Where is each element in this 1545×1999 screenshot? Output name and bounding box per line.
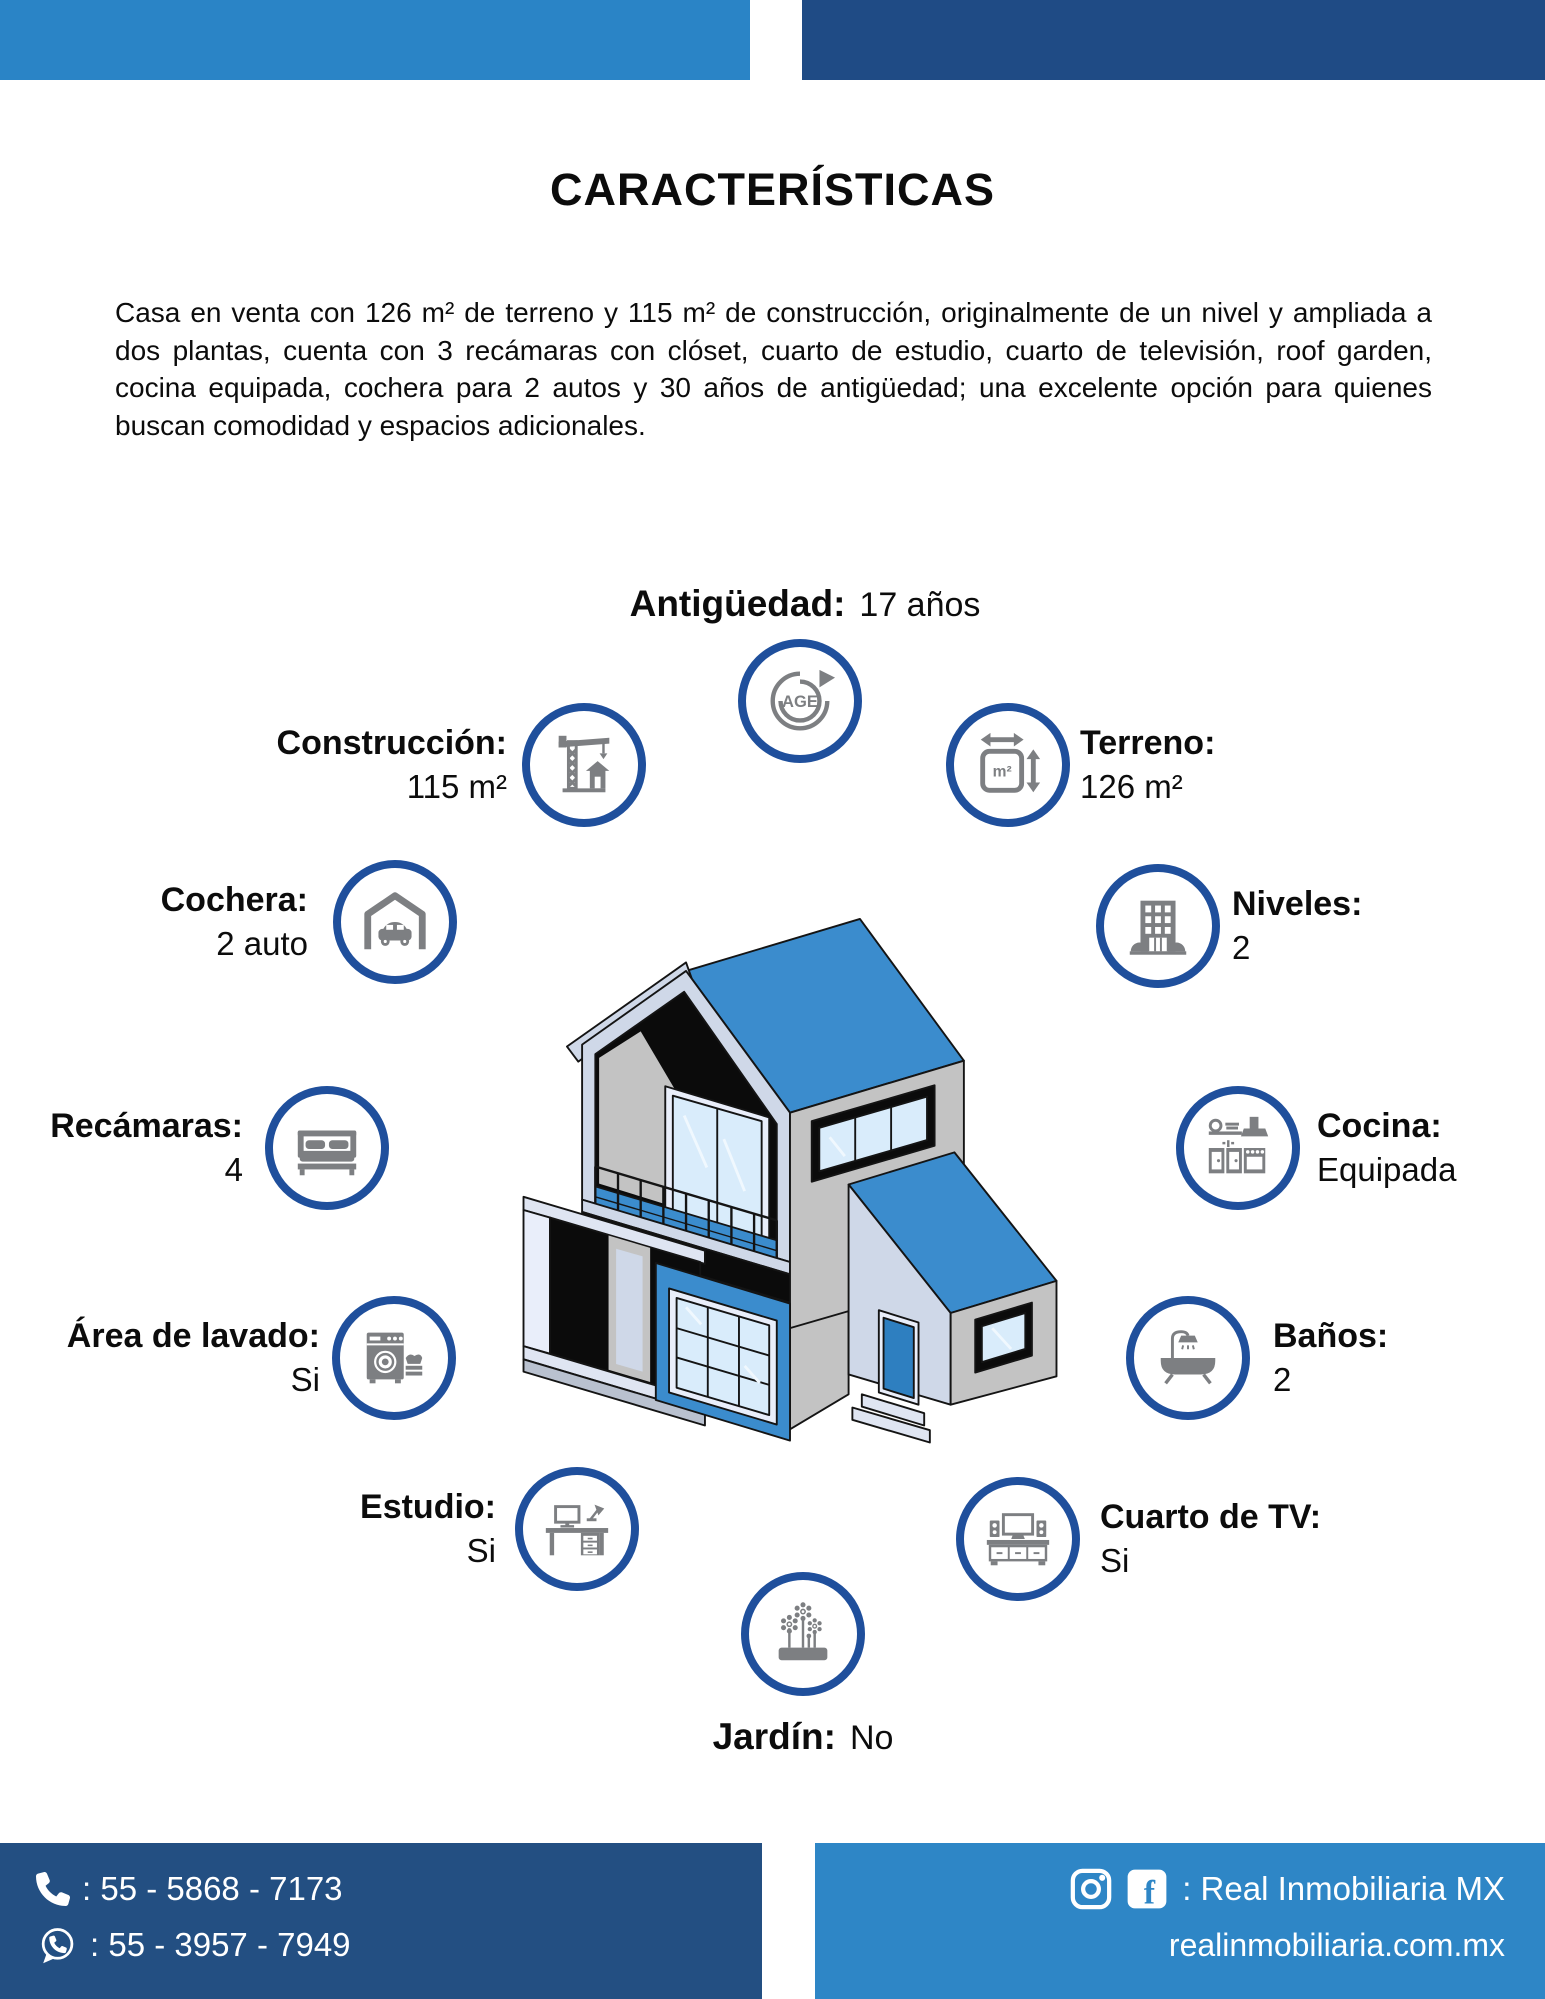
phone-number: : 55 - 5868 - 7173	[82, 1870, 343, 1908]
feature-label-terreno: Terreno: 126 m²	[1080, 721, 1215, 809]
age-cycle-icon: AGE	[763, 664, 837, 738]
website-url: realinmobiliaria.com.mx	[1169, 1927, 1505, 1964]
feature-circle-niveles	[1096, 864, 1220, 988]
desk-icon	[540, 1492, 614, 1566]
laundry-icon	[357, 1321, 431, 1395]
feature-circle-jardin	[741, 1572, 865, 1696]
feature-circle-cocina	[1176, 1086, 1300, 1210]
svg-text:m²: m²	[993, 764, 1012, 781]
social-handle: : Real Inmobiliaria MX	[1182, 1870, 1505, 1908]
antiguedad-value: 17 años	[859, 586, 980, 624]
antiguedad-label: Antigüedad:	[630, 583, 846, 624]
facebook-icon: f	[1124, 1866, 1170, 1912]
svg-text:f: f	[1144, 1875, 1156, 1912]
feature-label-cocina: Cocina: Equipada	[1317, 1104, 1456, 1192]
garden-icon	[766, 1597, 840, 1671]
header-bar-left	[0, 0, 750, 80]
bathtub-icon	[1151, 1321, 1225, 1395]
feature-label-recamaras: Recámaras: 4	[50, 1104, 243, 1192]
real-estate-flyer: CARACTERÍSTICAS Casa en venta con 126 m²…	[0, 0, 1545, 1999]
feature-circle-cuarto-tv	[956, 1477, 1080, 1601]
whatsapp-number: : 55 - 3957 - 7949	[90, 1926, 351, 1964]
house-illustration	[497, 884, 1083, 1451]
feature-circle-cochera	[333, 860, 457, 984]
whatsapp-row: : 55 - 3957 - 7949	[36, 1917, 762, 1973]
property-description: Casa en venta con 126 m² de terreno y 11…	[115, 294, 1432, 444]
feature-label-niveles: Niveles: 2	[1232, 882, 1362, 970]
feature-circle-construccion	[522, 703, 646, 827]
header-bar-right	[802, 0, 1545, 80]
whatsapp-icon	[36, 1924, 78, 1966]
phone-icon	[36, 1872, 70, 1906]
svg-text:AGE: AGE	[782, 692, 818, 711]
feature-label-area-lavado: Área de lavado: Si	[67, 1314, 320, 1402]
building-icon	[1121, 889, 1195, 963]
page-title: CARACTERÍSTICAS	[0, 164, 1545, 216]
feature-label-cochera: Cochera: 2 auto	[161, 878, 308, 966]
tv-room-icon	[981, 1502, 1055, 1576]
feature-label-estudio: Estudio: Si	[360, 1485, 496, 1573]
phone-row: : 55 - 5868 - 7173	[36, 1861, 762, 1917]
kitchen-icon	[1201, 1111, 1275, 1185]
feature-label-jardin: Jardín:No	[713, 1716, 894, 1758]
feature-label-banos: Baños: 2	[1273, 1314, 1388, 1402]
social-row: f : Real Inmobiliaria MX	[815, 1861, 1505, 1917]
bed-icon	[290, 1111, 364, 1185]
feature-circle-area-lavado	[332, 1296, 456, 1420]
feature-label-construccion: Construcción: 115 m²	[277, 721, 507, 809]
crane-icon	[547, 728, 621, 802]
feature-circle-recamaras	[265, 1086, 389, 1210]
area-m2-icon: m²	[971, 728, 1045, 802]
footer-social-block: f : Real Inmobiliaria MX realinmobiliari…	[815, 1843, 1545, 1999]
feature-circle-banos	[1126, 1296, 1250, 1420]
feature-circle-terreno: m²	[946, 703, 1070, 827]
website-row: realinmobiliaria.com.mx	[815, 1917, 1505, 1973]
garage-car-icon	[358, 885, 432, 959]
feature-label-antiguedad: Antigüedad:17 años	[630, 583, 981, 625]
footer-contact-block: : 55 - 5868 - 7173 : 55 - 3957 - 7949	[0, 1843, 762, 1999]
feature-circle-antiguedad: AGE	[738, 639, 862, 763]
feature-label-cuarto-tv: Cuarto de TV: Si	[1100, 1495, 1321, 1583]
feature-circle-estudio	[515, 1467, 639, 1591]
instagram-icon	[1068, 1866, 1114, 1912]
